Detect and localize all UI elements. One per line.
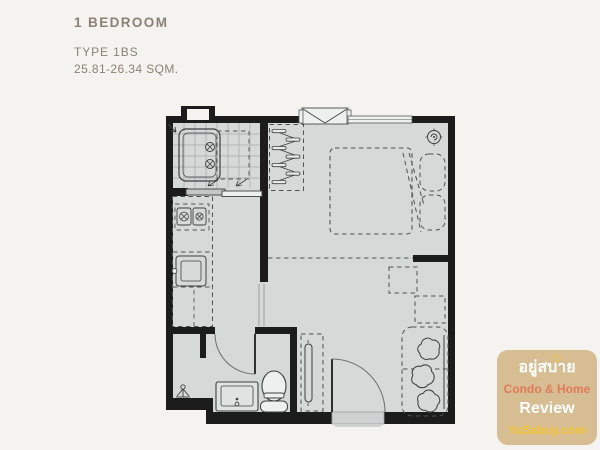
watermark-review: Review [519, 401, 574, 417]
watermark-thai-text: อยู่สบาย☺ [518, 359, 575, 377]
toilet-icon [261, 371, 288, 412]
window-icon [348, 116, 412, 123]
entrance-threshold [332, 412, 384, 427]
vanity-sink-icon [216, 382, 258, 411]
watermark-condo-home: Condo & Home [504, 383, 591, 395]
air-conditioner-icon [299, 108, 351, 124]
service-shaft [181, 106, 215, 123]
watermark-url: YuSabuy.com [508, 424, 586, 436]
smiley-icon: ☺ [550, 351, 563, 364]
page-root: 1 BEDROOM TYPE 1BS 25.81-26.34 SQM. [0, 0, 600, 450]
watermark-badge: อยู่สบาย☺ Condo & Home Review YuSabuy.co… [497, 350, 597, 445]
